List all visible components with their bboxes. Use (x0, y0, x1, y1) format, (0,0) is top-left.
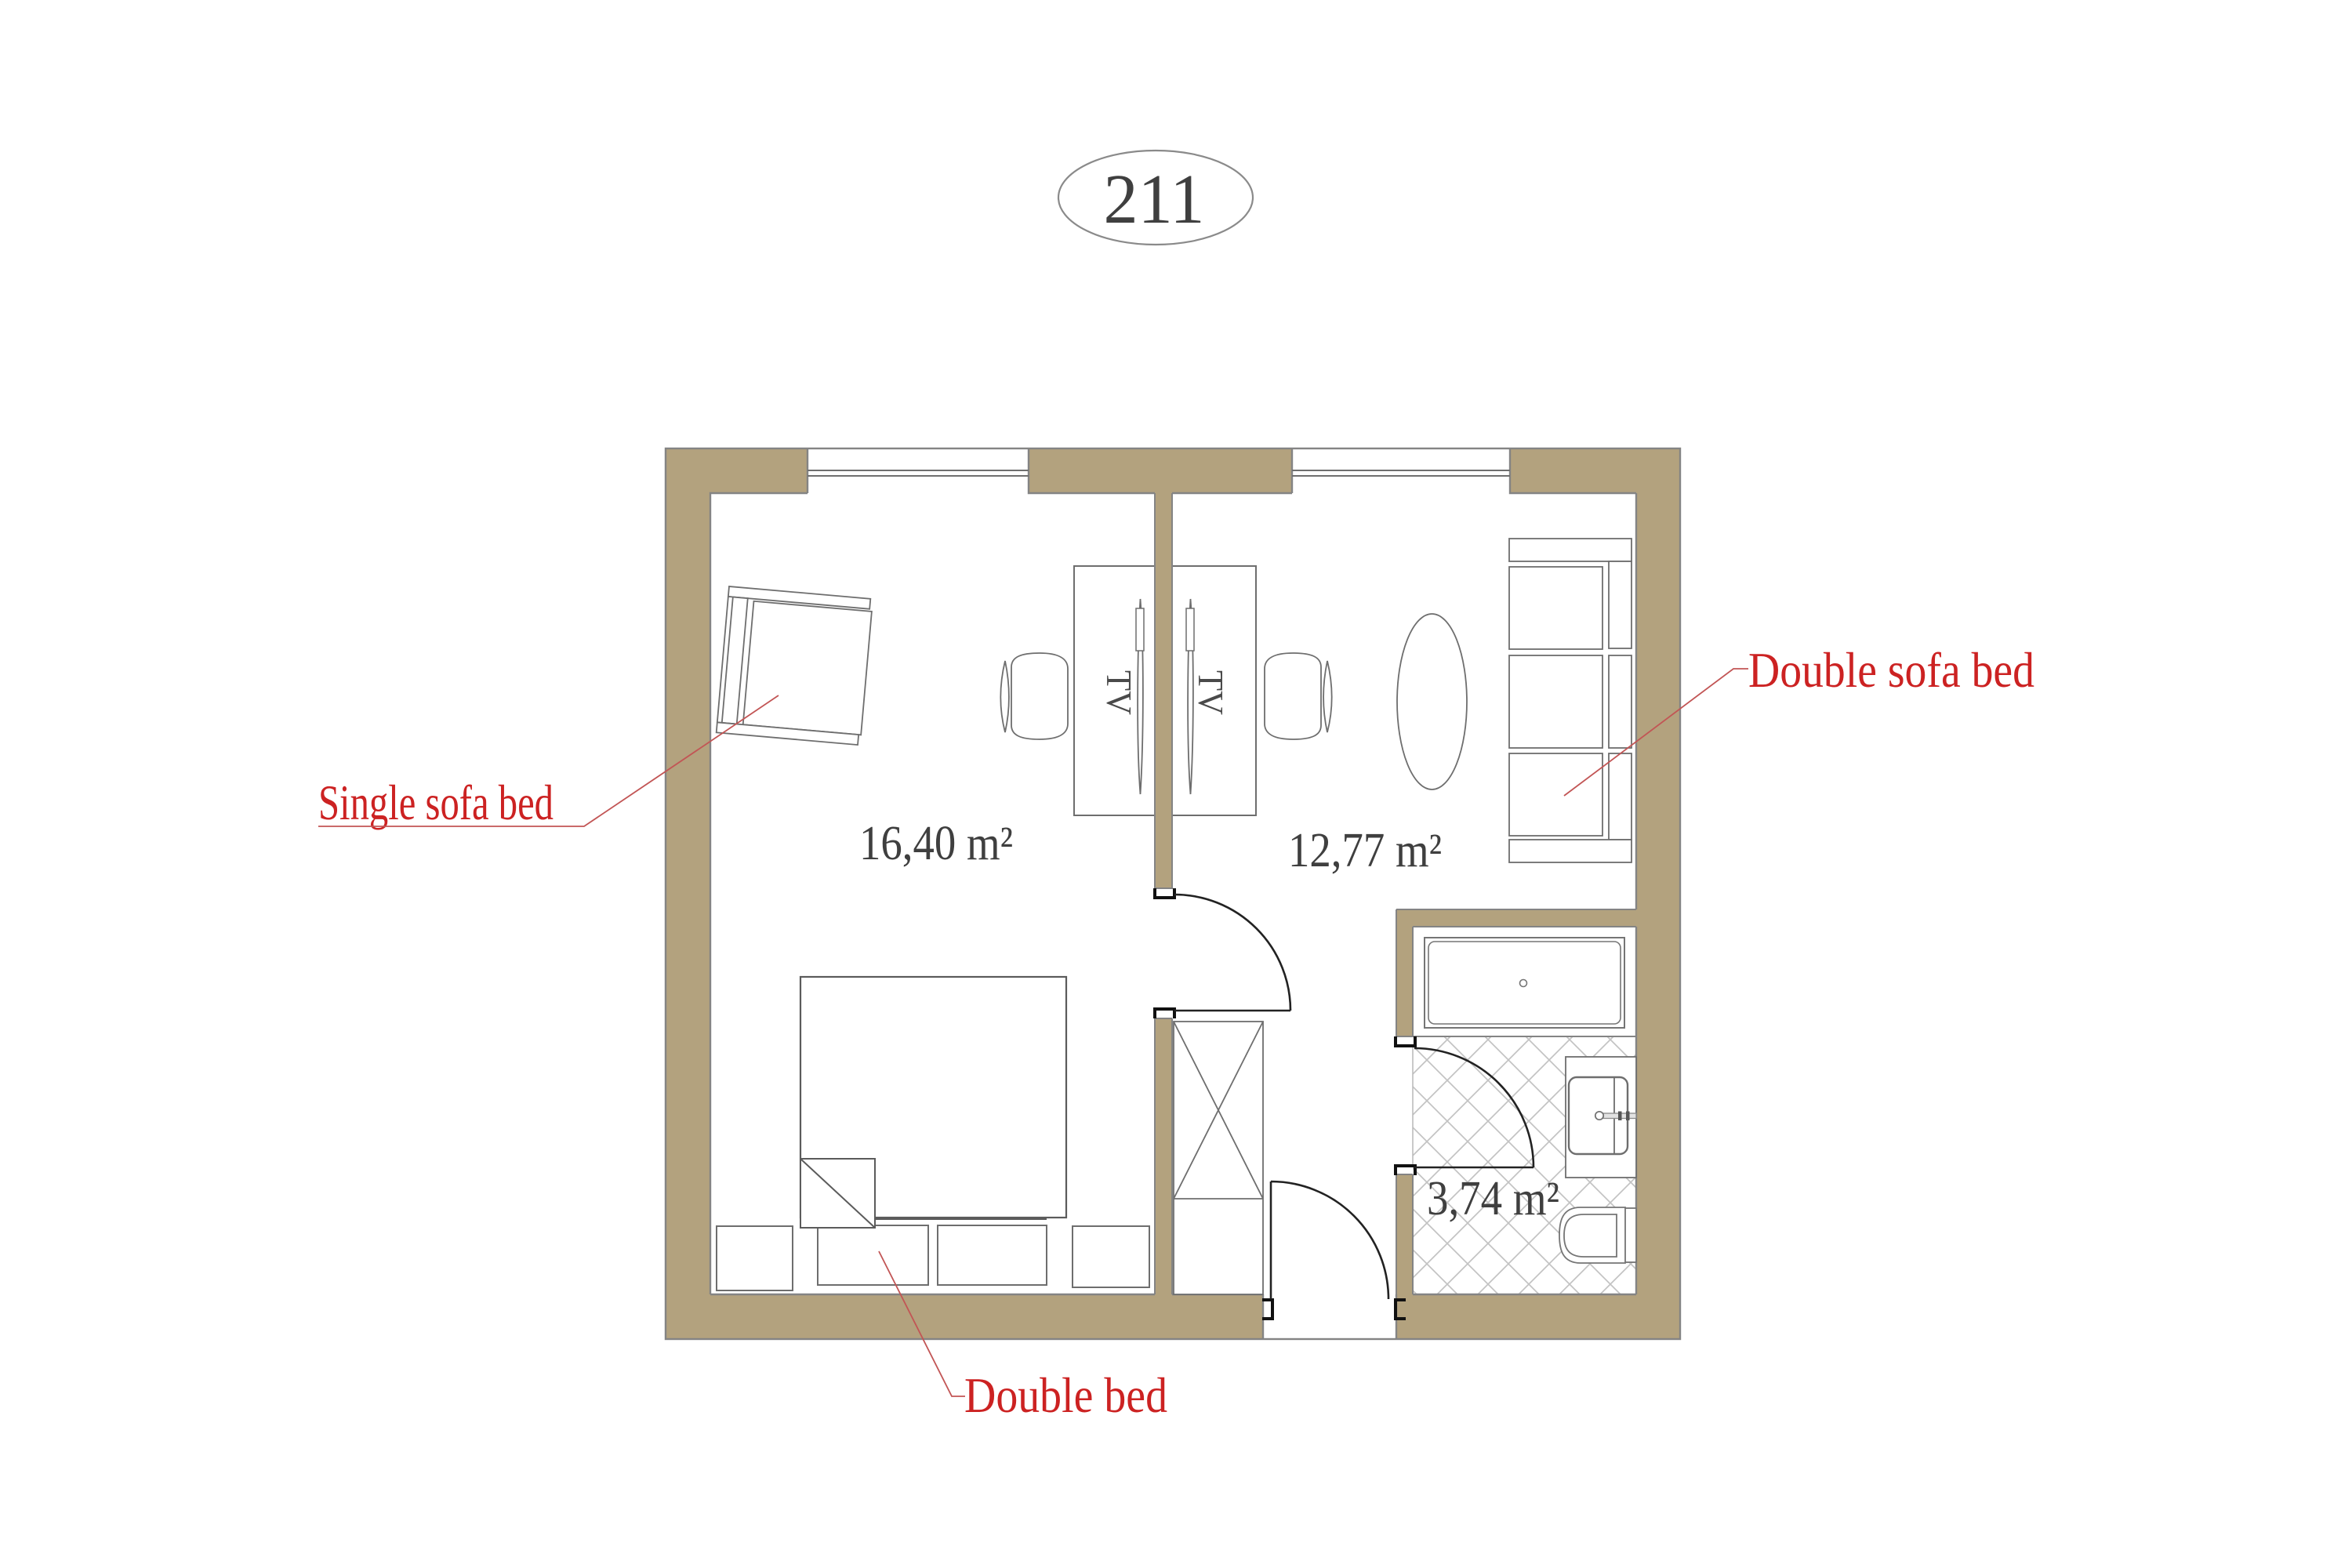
svg-text:211: 211 (1104, 161, 1205, 238)
svg-text:16,40 m²: 16,40 m² (859, 817, 1013, 870)
svg-text:TV: TV (1099, 670, 1138, 715)
svg-text:Single sofa bed: Single sofa bed (318, 775, 554, 830)
svg-text:3,74 m²: 3,74 m² (1427, 1172, 1559, 1225)
svg-text:TV: TV (1191, 670, 1230, 715)
svg-text:Double sofa bed: Double sofa bed (1748, 643, 2034, 698)
svg-text:Double bed: Double bed (964, 1368, 1167, 1423)
svg-text:12,77 m²: 12,77 m² (1288, 824, 1442, 877)
